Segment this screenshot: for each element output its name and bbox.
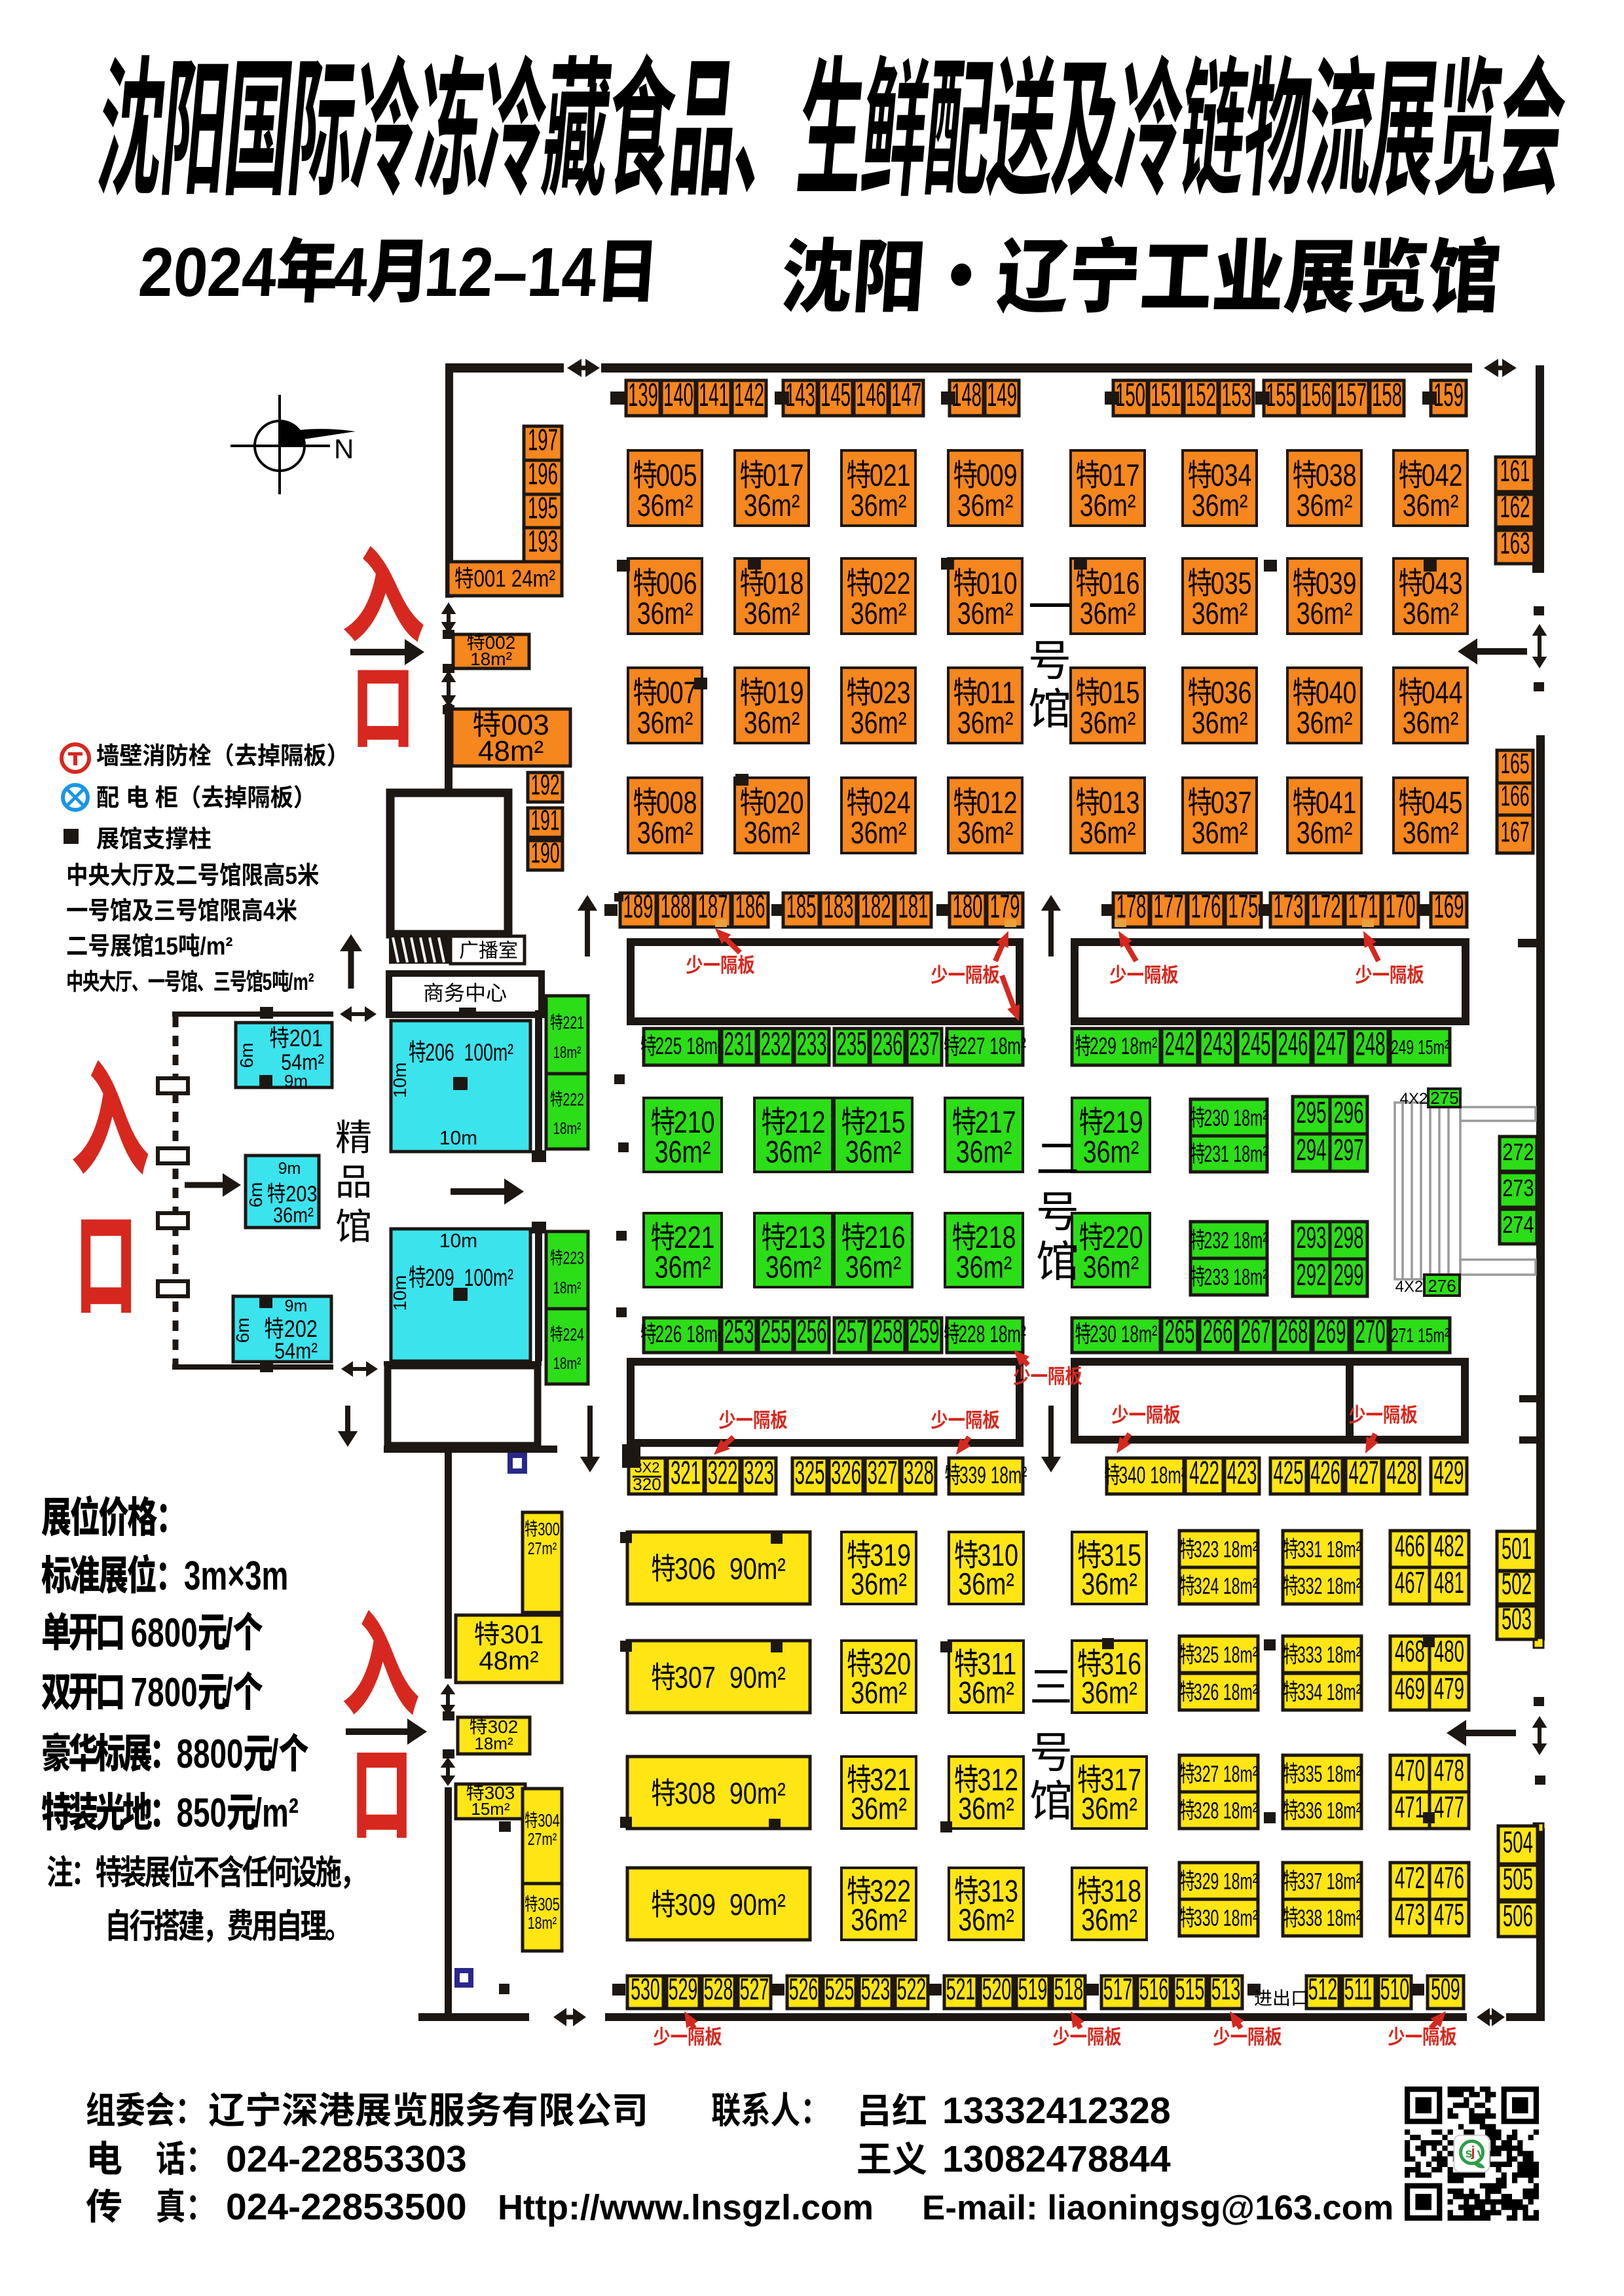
- svg-text:143: 143: [785, 376, 815, 413]
- svg-text:478: 478: [1434, 1755, 1464, 1788]
- svg-text:36m²: 36m²: [637, 488, 693, 523]
- svg-text:236: 236: [873, 1025, 903, 1062]
- svg-text:36m²: 36m²: [1403, 706, 1459, 740]
- svg-text:142: 142: [734, 376, 764, 413]
- svg-text:425: 425: [1274, 1454, 1304, 1491]
- svg-text:18m²: 18m²: [1121, 1321, 1158, 1347]
- svg-text:191: 191: [530, 803, 559, 836]
- svg-text:331: 331: [1297, 1537, 1323, 1563]
- svg-text:170: 170: [1386, 888, 1416, 925]
- svg-text:322: 322: [708, 1454, 738, 1491]
- svg-text:36m²: 36m²: [1403, 488, 1459, 523]
- svg-text:329: 329: [1194, 1869, 1219, 1895]
- svg-text:221: 221: [563, 1013, 584, 1032]
- svg-text:193: 193: [528, 525, 558, 558]
- svg-text:156: 156: [1301, 376, 1331, 413]
- svg-text:325: 325: [1194, 1643, 1219, 1668]
- svg-text:196: 196: [528, 458, 558, 491]
- svg-text:470: 470: [1395, 1755, 1425, 1788]
- svg-text:36m²: 36m²: [766, 1250, 822, 1285]
- svg-text:145: 145: [821, 376, 851, 413]
- svg-text:36m²: 36m²: [851, 596, 907, 631]
- svg-text:36m²: 36m²: [957, 816, 1014, 850]
- svg-text:18m²: 18m²: [686, 1321, 723, 1347]
- svg-text:18m²: 18m²: [989, 1321, 1026, 1347]
- svg-text:36m²: 36m²: [956, 1135, 1012, 1169]
- svg-text:325: 325: [795, 1454, 825, 1491]
- svg-text:516: 516: [1139, 1972, 1169, 2005]
- svg-text:36m²: 36m²: [1080, 816, 1136, 850]
- svg-text:36m²: 36m²: [744, 596, 800, 631]
- svg-text:90m²: 90m²: [729, 1887, 786, 1921]
- svg-text:477: 477: [1434, 1791, 1464, 1825]
- svg-text:18m²: 18m²: [1223, 1869, 1258, 1895]
- svg-text:521: 521: [946, 1972, 976, 2005]
- svg-text:15m²: 15m²: [1418, 1036, 1449, 1059]
- svg-text:18m²: 18m²: [553, 1119, 581, 1137]
- svg-text:231: 231: [1204, 1142, 1229, 1167]
- svg-text:326: 326: [1194, 1680, 1219, 1705]
- svg-text:301: 301: [500, 1620, 544, 1649]
- svg-text:472: 472: [1395, 1862, 1425, 1895]
- svg-text:151: 151: [1151, 376, 1181, 413]
- svg-text:36m²: 36m²: [637, 596, 693, 631]
- svg-text:148: 148: [951, 376, 982, 413]
- svg-text:186: 186: [735, 888, 766, 925]
- svg-text:36m²: 36m²: [851, 1792, 907, 1827]
- svg-text:36m²: 36m²: [958, 1792, 1014, 1827]
- svg-text:246: 246: [1278, 1025, 1308, 1062]
- svg-text:36m²: 36m²: [851, 1676, 907, 1711]
- svg-text:8800: 8800: [176, 1731, 243, 1776]
- svg-text:427: 427: [1349, 1454, 1379, 1491]
- svg-text:190: 190: [530, 836, 559, 869]
- svg-text:18m²: 18m²: [1327, 1537, 1361, 1563]
- svg-text:12–14: 12–14: [422, 234, 599, 311]
- svg-text:306: 306: [674, 1552, 716, 1585]
- svg-text:36m²: 36m²: [851, 816, 907, 850]
- svg-text:327: 327: [868, 1454, 898, 1491]
- svg-text:259: 259: [910, 1313, 940, 1350]
- svg-text:225: 225: [655, 1032, 682, 1059]
- svg-text:247: 247: [1316, 1025, 1346, 1062]
- svg-text:18m²: 18m²: [1327, 1762, 1361, 1787]
- svg-text:155: 155: [1266, 376, 1296, 413]
- svg-text:195: 195: [528, 492, 558, 525]
- svg-text:18m²: 18m²: [1223, 1906, 1258, 1931]
- svg-text:515: 515: [1175, 1972, 1205, 2005]
- svg-text:36m²: 36m²: [845, 1135, 902, 1169]
- svg-text:335: 335: [1297, 1762, 1323, 1787]
- svg-text:340: 340: [1119, 1462, 1146, 1489]
- svg-text:242: 242: [1165, 1025, 1195, 1062]
- svg-text:100m²: 100m²: [464, 1264, 514, 1291]
- svg-text:10m: 10m: [390, 1063, 410, 1098]
- svg-text:36m²: 36m²: [655, 1250, 711, 1285]
- svg-text:307: 307: [674, 1660, 716, 1694]
- svg-text:/m²: /m²: [253, 1790, 299, 1835]
- svg-text:510: 510: [1380, 1972, 1410, 2005]
- svg-text:36m²: 36m²: [1080, 706, 1136, 740]
- svg-text:309: 309: [674, 1887, 716, 1921]
- svg-text:36m²: 36m²: [845, 1250, 902, 1285]
- svg-text:271: 271: [1391, 1324, 1414, 1347]
- svg-text:223: 223: [563, 1248, 584, 1267]
- svg-text:48m²: 48m²: [478, 735, 544, 767]
- svg-text:162: 162: [1500, 491, 1530, 524]
- svg-text:224: 224: [563, 1324, 584, 1344]
- svg-text:147: 147: [891, 376, 921, 413]
- svg-text:10m: 10m: [439, 1230, 477, 1252]
- svg-text:6m: 6m: [232, 1317, 253, 1343]
- svg-text:183: 183: [824, 888, 854, 925]
- svg-text:505: 505: [1503, 1863, 1533, 1897]
- svg-text:7800: 7800: [131, 1669, 198, 1715]
- svg-text:4: 4: [263, 897, 276, 924]
- svg-text:36m²: 36m²: [1083, 1250, 1139, 1285]
- svg-text:192: 192: [530, 768, 559, 801]
- svg-text:226: 226: [655, 1321, 682, 1347]
- svg-text:229: 229: [1090, 1032, 1116, 1059]
- svg-text:173: 173: [1274, 888, 1304, 925]
- svg-text:48m²: 48m²: [479, 1647, 538, 1675]
- svg-text:188: 188: [661, 888, 691, 925]
- svg-text:18m²: 18m²: [1327, 1680, 1361, 1705]
- svg-text:6m: 6m: [236, 1042, 257, 1068]
- svg-text:232: 232: [1204, 1228, 1229, 1254]
- svg-text:235: 235: [837, 1025, 867, 1062]
- svg-text:165: 165: [1500, 747, 1529, 780]
- svg-text:6m: 6m: [246, 1182, 266, 1207]
- svg-text:296: 296: [1333, 1097, 1363, 1130]
- svg-text:228: 228: [959, 1321, 986, 1347]
- svg-text:159: 159: [1433, 376, 1464, 413]
- svg-text:100m²: 100m²: [464, 1039, 514, 1066]
- svg-text:001: 001: [473, 565, 506, 591]
- svg-text:36m²: 36m²: [851, 488, 907, 523]
- svg-text:320: 320: [633, 1474, 661, 1494]
- svg-text:429: 429: [1434, 1454, 1464, 1491]
- svg-text:15: 15: [154, 932, 178, 960]
- svg-text:422: 422: [1189, 1454, 1219, 1491]
- svg-text:181: 181: [898, 888, 929, 925]
- svg-text:519: 519: [1018, 1972, 1048, 2005]
- svg-text:295: 295: [1296, 1097, 1326, 1130]
- svg-text:18m²: 18m²: [991, 1462, 1027, 1489]
- svg-text:/: /: [270, 1731, 279, 1776]
- svg-text:36m²: 36m²: [1192, 596, 1248, 631]
- svg-text:466: 466: [1395, 1530, 1425, 1563]
- svg-text:152: 152: [1186, 376, 1216, 413]
- svg-text:166: 166: [1500, 779, 1529, 812]
- svg-text:24m²: 24m²: [511, 565, 555, 591]
- svg-text:233: 233: [797, 1025, 827, 1062]
- svg-text:222: 222: [563, 1089, 584, 1109]
- svg-text:18m²: 18m²: [528, 1913, 557, 1932]
- svg-text:36m²: 36m²: [1192, 488, 1248, 523]
- svg-text:167: 167: [1500, 816, 1529, 848]
- svg-text:/: /: [225, 1669, 233, 1715]
- svg-text:327: 327: [1194, 1762, 1219, 1787]
- svg-text:528: 528: [704, 1972, 733, 2005]
- svg-text:2024: 2024: [136, 234, 279, 311]
- svg-text:476: 476: [1434, 1862, 1464, 1895]
- svg-text:248: 248: [1356, 1025, 1386, 1062]
- svg-text:468: 468: [1395, 1635, 1425, 1669]
- svg-text:230: 230: [1204, 1106, 1229, 1131]
- svg-text:520: 520: [982, 1972, 1012, 2005]
- svg-text:9m: 9m: [284, 1071, 308, 1091]
- svg-text:321: 321: [671, 1454, 701, 1491]
- svg-text:27m²: 27m²: [528, 1539, 557, 1558]
- svg-text:18m²: 18m²: [1223, 1798, 1258, 1824]
- svg-text:525: 525: [825, 1972, 855, 2005]
- svg-text:36m²: 36m²: [744, 816, 800, 850]
- svg-text:18m²: 18m²: [1327, 1906, 1361, 1931]
- svg-text:18m²: 18m²: [1223, 1680, 1258, 1705]
- svg-text:36m²: 36m²: [1080, 596, 1136, 631]
- svg-text:201: 201: [289, 1026, 323, 1052]
- svg-text:276: 276: [1428, 1276, 1456, 1296]
- svg-text:177: 177: [1154, 888, 1184, 925]
- svg-text:257: 257: [837, 1313, 867, 1350]
- svg-text:18m²: 18m²: [1223, 1574, 1258, 1599]
- svg-text:y: y: [1477, 2147, 1485, 2161]
- svg-text:36m²: 36m²: [1297, 706, 1353, 740]
- svg-text:332: 332: [1297, 1574, 1323, 1599]
- svg-text:269: 269: [1316, 1313, 1346, 1350]
- svg-text:326: 326: [831, 1454, 861, 1491]
- svg-text:4X2: 4X2: [1395, 1278, 1424, 1296]
- svg-text:150: 150: [1115, 376, 1145, 413]
- svg-text:506: 506: [1503, 1900, 1533, 1933]
- svg-text:480: 480: [1434, 1635, 1464, 1669]
- svg-text:297: 297: [1333, 1134, 1363, 1167]
- svg-text:10m: 10m: [390, 1275, 410, 1311]
- svg-text:517: 517: [1103, 1972, 1133, 2005]
- svg-text:18m²: 18m²: [1233, 1106, 1268, 1131]
- svg-text:36m²: 36m²: [1083, 1135, 1139, 1169]
- svg-text:liaoningsg@163.com: liaoningsg@163.com: [1047, 2189, 1393, 2227]
- svg-text:324: 324: [1194, 1574, 1219, 1599]
- svg-text:501: 501: [1502, 1533, 1532, 1566]
- svg-text:270: 270: [1356, 1313, 1386, 1350]
- svg-text:18m²: 18m²: [989, 1032, 1026, 1059]
- svg-text:18m²: 18m²: [474, 1734, 513, 1753]
- svg-text:258: 258: [873, 1313, 903, 1350]
- svg-text:18m²: 18m²: [1327, 1643, 1361, 1668]
- svg-text:/: /: [225, 1610, 233, 1655]
- svg-text:334: 334: [1297, 1680, 1323, 1705]
- svg-text:305: 305: [538, 1895, 560, 1915]
- svg-text:140: 140: [663, 376, 693, 413]
- svg-text:530: 530: [631, 1972, 660, 2005]
- svg-text:189: 189: [623, 888, 654, 925]
- svg-text:36m²: 36m²: [1297, 816, 1353, 850]
- svg-text:E-mail:: E-mail:: [922, 2189, 1038, 2227]
- svg-text:36m²: 36m²: [1081, 1567, 1137, 1602]
- svg-text:18m²: 18m²: [1150, 1462, 1187, 1489]
- svg-text:509: 509: [1431, 1972, 1460, 2005]
- svg-text:298: 298: [1333, 1222, 1363, 1255]
- svg-text:255: 255: [761, 1313, 791, 1350]
- svg-text:18m²: 18m²: [1223, 1537, 1258, 1563]
- svg-text:5: 5: [285, 862, 297, 889]
- svg-text:333: 333: [1297, 1643, 1323, 1668]
- svg-text:523: 523: [861, 1972, 891, 2005]
- svg-text:339: 339: [959, 1462, 986, 1489]
- svg-text:527: 527: [740, 1972, 769, 2005]
- svg-text:482: 482: [1434, 1530, 1464, 1563]
- svg-text:253: 253: [724, 1313, 754, 1350]
- svg-text:36m²: 36m²: [1192, 706, 1248, 740]
- svg-text:850: 850: [176, 1790, 227, 1835]
- svg-text:243: 243: [1203, 1025, 1233, 1062]
- svg-text:206: 206: [425, 1039, 454, 1066]
- svg-text:4: 4: [331, 234, 371, 311]
- svg-text:36m²: 36m²: [1081, 1903, 1137, 1938]
- svg-text:9m: 9m: [285, 1297, 308, 1315]
- svg-text:473: 473: [1395, 1899, 1425, 1932]
- svg-text:54m²: 54m²: [274, 1338, 318, 1364]
- svg-text:161: 161: [1500, 455, 1530, 488]
- svg-text:428: 428: [1387, 1454, 1417, 1491]
- svg-text:18m²: 18m²: [1223, 1762, 1258, 1787]
- svg-text:323: 323: [744, 1454, 774, 1491]
- svg-text:18m²: 18m²: [1233, 1142, 1268, 1167]
- svg-text:471: 471: [1395, 1791, 1425, 1825]
- svg-text:/m²: /m²: [200, 932, 232, 960]
- svg-text:175: 175: [1228, 888, 1259, 925]
- svg-text:227: 227: [959, 1032, 986, 1059]
- svg-text:36m²: 36m²: [1297, 596, 1353, 631]
- svg-text:330: 330: [1194, 1906, 1219, 1931]
- svg-text:18m²: 18m²: [1327, 1798, 1361, 1824]
- svg-text:185: 185: [786, 888, 817, 925]
- svg-text:180: 180: [953, 888, 983, 925]
- svg-text:3m×3m: 3m×3m: [184, 1553, 288, 1598]
- svg-text:232: 232: [761, 1025, 791, 1062]
- svg-text:18m²: 18m²: [1233, 1228, 1268, 1254]
- svg-text:233: 233: [1204, 1265, 1229, 1290]
- svg-text:j: j: [1471, 2143, 1475, 2160]
- svg-text:9m: 9m: [278, 1159, 301, 1178]
- svg-text:18m²: 18m²: [553, 1279, 581, 1297]
- svg-text:36m²: 36m²: [273, 1204, 314, 1228]
- svg-text:526: 526: [789, 1972, 819, 2005]
- svg-text:172: 172: [1311, 888, 1341, 925]
- svg-text:267: 267: [1241, 1313, 1271, 1350]
- svg-text:139: 139: [628, 376, 658, 413]
- svg-text:337: 337: [1297, 1869, 1323, 1895]
- svg-text:18m²: 18m²: [1327, 1869, 1361, 1895]
- svg-text:197: 197: [528, 424, 558, 457]
- svg-text:36m²: 36m²: [744, 706, 800, 740]
- svg-text:481: 481: [1434, 1567, 1464, 1600]
- svg-text:90m²: 90m²: [729, 1660, 786, 1694]
- svg-text:N: N: [334, 433, 354, 464]
- svg-text:18m²: 18m²: [1121, 1032, 1158, 1059]
- svg-text:176: 176: [1191, 888, 1221, 925]
- svg-text:36m²: 36m²: [958, 1903, 1014, 1938]
- svg-text:18m²: 18m²: [553, 1354, 581, 1372]
- svg-text:502: 502: [1502, 1568, 1532, 1601]
- svg-text:522: 522: [897, 1972, 927, 2005]
- svg-text:268: 268: [1278, 1313, 1308, 1350]
- svg-text:141: 141: [699, 376, 729, 413]
- svg-text:511: 511: [1344, 1972, 1373, 2005]
- svg-text:163: 163: [1500, 528, 1530, 561]
- svg-text:338: 338: [1297, 1906, 1323, 1931]
- svg-text:36m²: 36m²: [958, 1567, 1014, 1602]
- svg-text:36m²: 36m²: [766, 1135, 822, 1169]
- svg-text:36m²: 36m²: [637, 706, 693, 740]
- svg-text:293: 293: [1296, 1222, 1326, 1255]
- svg-text:467: 467: [1395, 1567, 1425, 1600]
- svg-text:36m²: 36m²: [957, 488, 1014, 523]
- svg-text:503: 503: [1502, 1603, 1532, 1637]
- svg-text:/m²: /m²: [288, 968, 314, 995]
- svg-text:274: 274: [1503, 1211, 1534, 1238]
- svg-text:158: 158: [1372, 376, 1402, 413]
- svg-text:323: 323: [1194, 1537, 1219, 1563]
- svg-text:36m²: 36m²: [1403, 816, 1459, 850]
- svg-text:4X2: 4X2: [1400, 1090, 1428, 1108]
- svg-text:13082478844: 13082478844: [942, 2138, 1171, 2180]
- svg-text:294: 294: [1296, 1134, 1326, 1167]
- svg-text:90m²: 90m²: [729, 1552, 786, 1585]
- svg-text:328: 328: [1194, 1798, 1219, 1824]
- svg-text:300: 300: [538, 1520, 560, 1540]
- svg-text:18m²: 18m²: [686, 1032, 723, 1059]
- svg-text:245: 245: [1241, 1025, 1271, 1062]
- svg-text:272: 272: [1503, 1139, 1534, 1165]
- svg-text:90m²: 90m²: [729, 1776, 786, 1810]
- svg-text:18m²: 18m²: [1327, 1574, 1361, 1599]
- svg-text:328: 328: [904, 1454, 934, 1491]
- svg-text:336: 336: [1297, 1798, 1323, 1824]
- svg-text:36m²: 36m²: [1297, 488, 1353, 523]
- svg-text:304: 304: [538, 1811, 560, 1831]
- svg-text:13332412328: 13332412328: [942, 2090, 1171, 2132]
- svg-text:292: 292: [1296, 1259, 1326, 1292]
- svg-text:209: 209: [425, 1264, 454, 1291]
- svg-text:265: 265: [1165, 1313, 1195, 1350]
- svg-text:36m²: 36m²: [851, 1903, 907, 1938]
- svg-text:266: 266: [1203, 1313, 1233, 1350]
- svg-text:475: 475: [1434, 1899, 1464, 1932]
- svg-text:Http://www.lnsgzl.com: Http://www.lnsgzl.com: [498, 2188, 874, 2227]
- svg-text:237: 237: [910, 1025, 940, 1062]
- svg-text:513: 513: [1211, 1972, 1241, 2005]
- svg-text:36m²: 36m²: [1081, 1792, 1137, 1827]
- svg-text:479: 479: [1434, 1673, 1464, 1706]
- svg-text:36m²: 36m²: [1192, 816, 1248, 850]
- svg-text:5: 5: [263, 968, 272, 995]
- svg-text:203: 203: [286, 1181, 317, 1207]
- svg-text:18m²: 18m²: [1223, 1643, 1258, 1668]
- svg-text:230: 230: [1090, 1321, 1116, 1347]
- svg-text:36m²: 36m²: [637, 816, 693, 850]
- svg-text:36m²: 36m²: [1080, 488, 1136, 523]
- svg-text:6800: 6800: [131, 1610, 198, 1655]
- svg-text:518: 518: [1054, 1972, 1084, 2005]
- svg-text:182: 182: [861, 888, 891, 925]
- svg-text:529: 529: [669, 1972, 698, 2005]
- svg-text:15m²: 15m²: [471, 1799, 510, 1819]
- svg-text:256: 256: [797, 1313, 827, 1350]
- svg-text:18m²: 18m²: [553, 1044, 581, 1062]
